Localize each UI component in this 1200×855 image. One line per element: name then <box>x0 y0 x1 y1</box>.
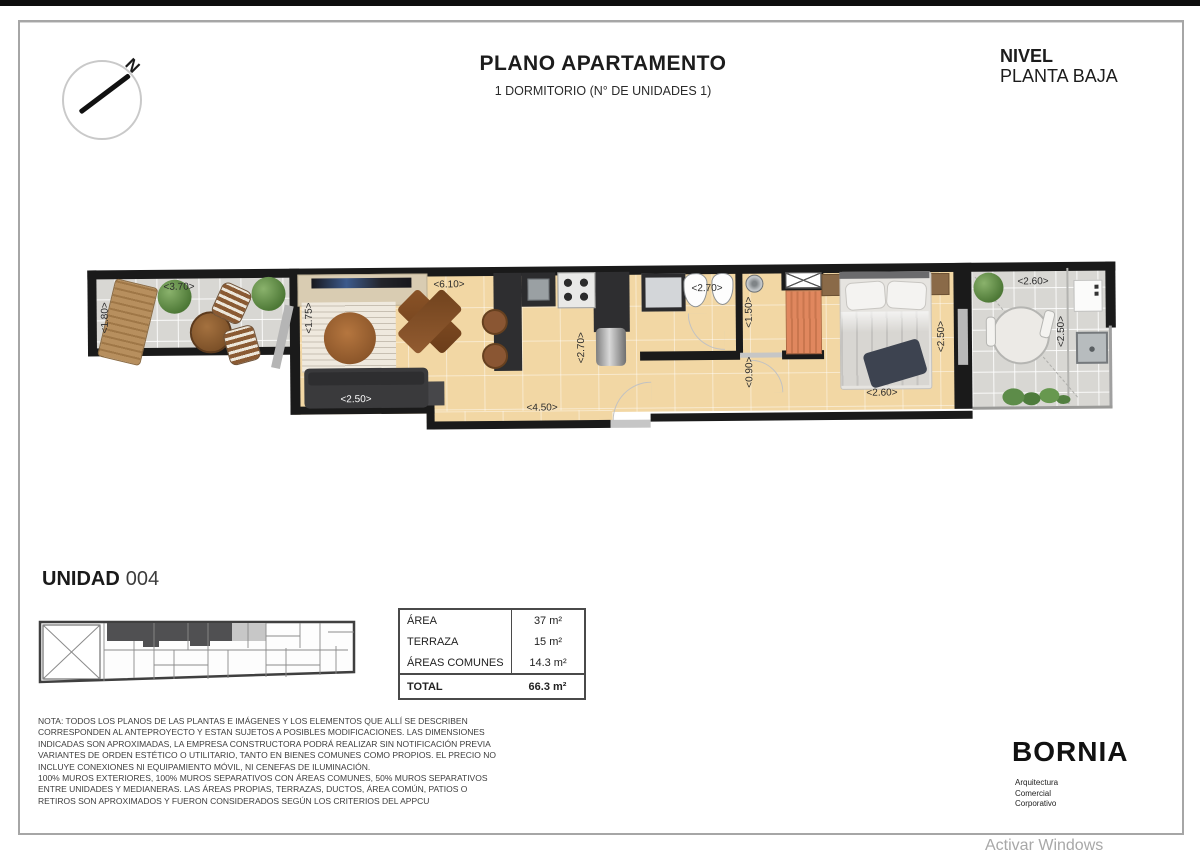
pillow <box>886 280 928 310</box>
wall-bath-vertical <box>735 271 743 355</box>
laundry-sink <box>1076 332 1108 364</box>
floor-plan: <3.70> <1.80> <1.75> <6.10> <2.70> <2.50… <box>87 260 1118 437</box>
dim-living-left: <1.75> <box>304 302 315 333</box>
brand-tagline: Corporativo <box>1015 799 1058 810</box>
water-heater <box>596 328 626 366</box>
plan-notes: NOTA: TODOS LOS PLANOS DE LAS PLANTAS E … <box>38 716 500 807</box>
activate-windows-watermark: Activar Windows <box>985 837 1103 855</box>
terraza-label: TERRAZA <box>400 631 512 652</box>
table-row: TERRAZA 15 m² <box>400 631 584 652</box>
dim-shower-depth: <1.50> <box>744 297 755 328</box>
wall-right-thin <box>1109 326 1113 408</box>
dim-entry-width: <4.50> <box>526 402 557 413</box>
screen-top-bar <box>0 0 1200 6</box>
note-paragraph-2: 100% MUROS EXTERIORES, 100% MUROS SEPARA… <box>38 773 500 807</box>
wall-bottom-right <box>651 411 973 422</box>
wall-left <box>87 270 97 354</box>
shower-head <box>745 275 763 293</box>
dining-table <box>400 291 461 352</box>
pillow <box>845 280 887 311</box>
bed-headboard <box>839 271 929 279</box>
wall-bottom-mid <box>433 420 611 430</box>
area-label: ÁREA <box>400 610 512 631</box>
tv-screen <box>311 278 411 289</box>
dim-sofa-width: <2.50> <box>340 394 371 405</box>
total-value: 66.3 m² <box>511 675 584 698</box>
sofa-back-cushions <box>308 372 424 386</box>
kitchen-counter-right <box>593 272 630 332</box>
rug-center-circle <box>324 312 376 364</box>
vanity-sink <box>641 273 685 311</box>
dim-bedroom-width: <2.60> <box>866 387 897 398</box>
level-block: NIVEL PLANTA BAJA <box>1000 46 1118 86</box>
dining-chair <box>482 309 508 335</box>
comunes-label: ÁREAS COMUNES <box>400 652 512 673</box>
wall-bath-horizontal <box>640 351 740 361</box>
duct-x-box <box>785 272 821 288</box>
terrace-chair-back <box>986 317 996 347</box>
terrace-right-bottom-edge <box>973 406 1113 410</box>
dim-living-width: <6.10> <box>433 279 464 290</box>
unit-title: UNIDAD004 <box>42 568 159 591</box>
bedroom-terrace-door <box>958 309 968 365</box>
dim-kitchen-depth: <2.70> <box>576 332 587 363</box>
brand-tagline: Comercial <box>1015 789 1058 800</box>
kitchen-sink-basin <box>527 278 549 300</box>
area-value: 37 m² <box>512 610 584 631</box>
plant <box>251 277 285 311</box>
brand-taglines: Arquitectura Comercial Corporativo <box>1015 778 1058 810</box>
area-table: ÁREA 37 m² TERRAZA 15 m² ÁREAS COMUNES 1… <box>398 608 586 700</box>
stove <box>557 272 595 308</box>
level-value: PLANTA BAJA <box>1000 66 1118 86</box>
plant <box>973 273 1003 303</box>
dim-terrace2-width: <2.60> <box>1017 276 1048 287</box>
unit-label: UNIDAD <box>42 568 120 590</box>
note-paragraph-1: NOTA: TODOS LOS PLANOS DE LAS PLANTAS E … <box>38 716 500 773</box>
unit-number: 004 <box>126 568 159 590</box>
terraza-value: 15 m² <box>512 631 584 652</box>
shrub <box>1002 388 1024 405</box>
dim-terrace-width: <3.70> <box>163 282 194 293</box>
comunes-value: 14.3 m² <box>512 652 584 673</box>
dim-bedroom-depth: <2.50> <box>936 321 947 352</box>
key-plan-graphic <box>38 620 358 686</box>
page-subtitle: 1 DORMITORIO (N° DE UNIDADES 1) <box>350 84 856 98</box>
dim-bath-width: <2.70> <box>691 283 722 294</box>
dim-hall-width: <0.90> <box>744 357 755 388</box>
dining-chair <box>482 343 508 369</box>
table-row: ÁREA 37 m² <box>400 610 584 631</box>
total-label: TOTAL <box>400 675 511 698</box>
dim-terrace2-depth: <2.50> <box>1056 316 1067 347</box>
title-block: PLANO APARTAMENTO 1 DORMITORIO (N° DE UN… <box>350 52 856 98</box>
wall-right-top <box>1105 262 1116 328</box>
brand-tagline: Arquitectura <box>1015 778 1058 789</box>
wardrobe <box>786 290 823 354</box>
page-title: PLANO APARTAMENTO <box>350 52 856 76</box>
level-label: NIVEL <box>1000 46 1118 66</box>
dim-terrace-depth: <1.80> <box>100 302 111 333</box>
brand-logo: BORNIA <box>1012 736 1128 768</box>
table-total-row: TOTAL 66.3 m² <box>400 673 584 698</box>
table-row: ÁREAS COMUNES 14.3 m² <box>400 652 584 673</box>
wall-step-left <box>290 347 301 415</box>
washing-machine <box>1073 280 1102 312</box>
